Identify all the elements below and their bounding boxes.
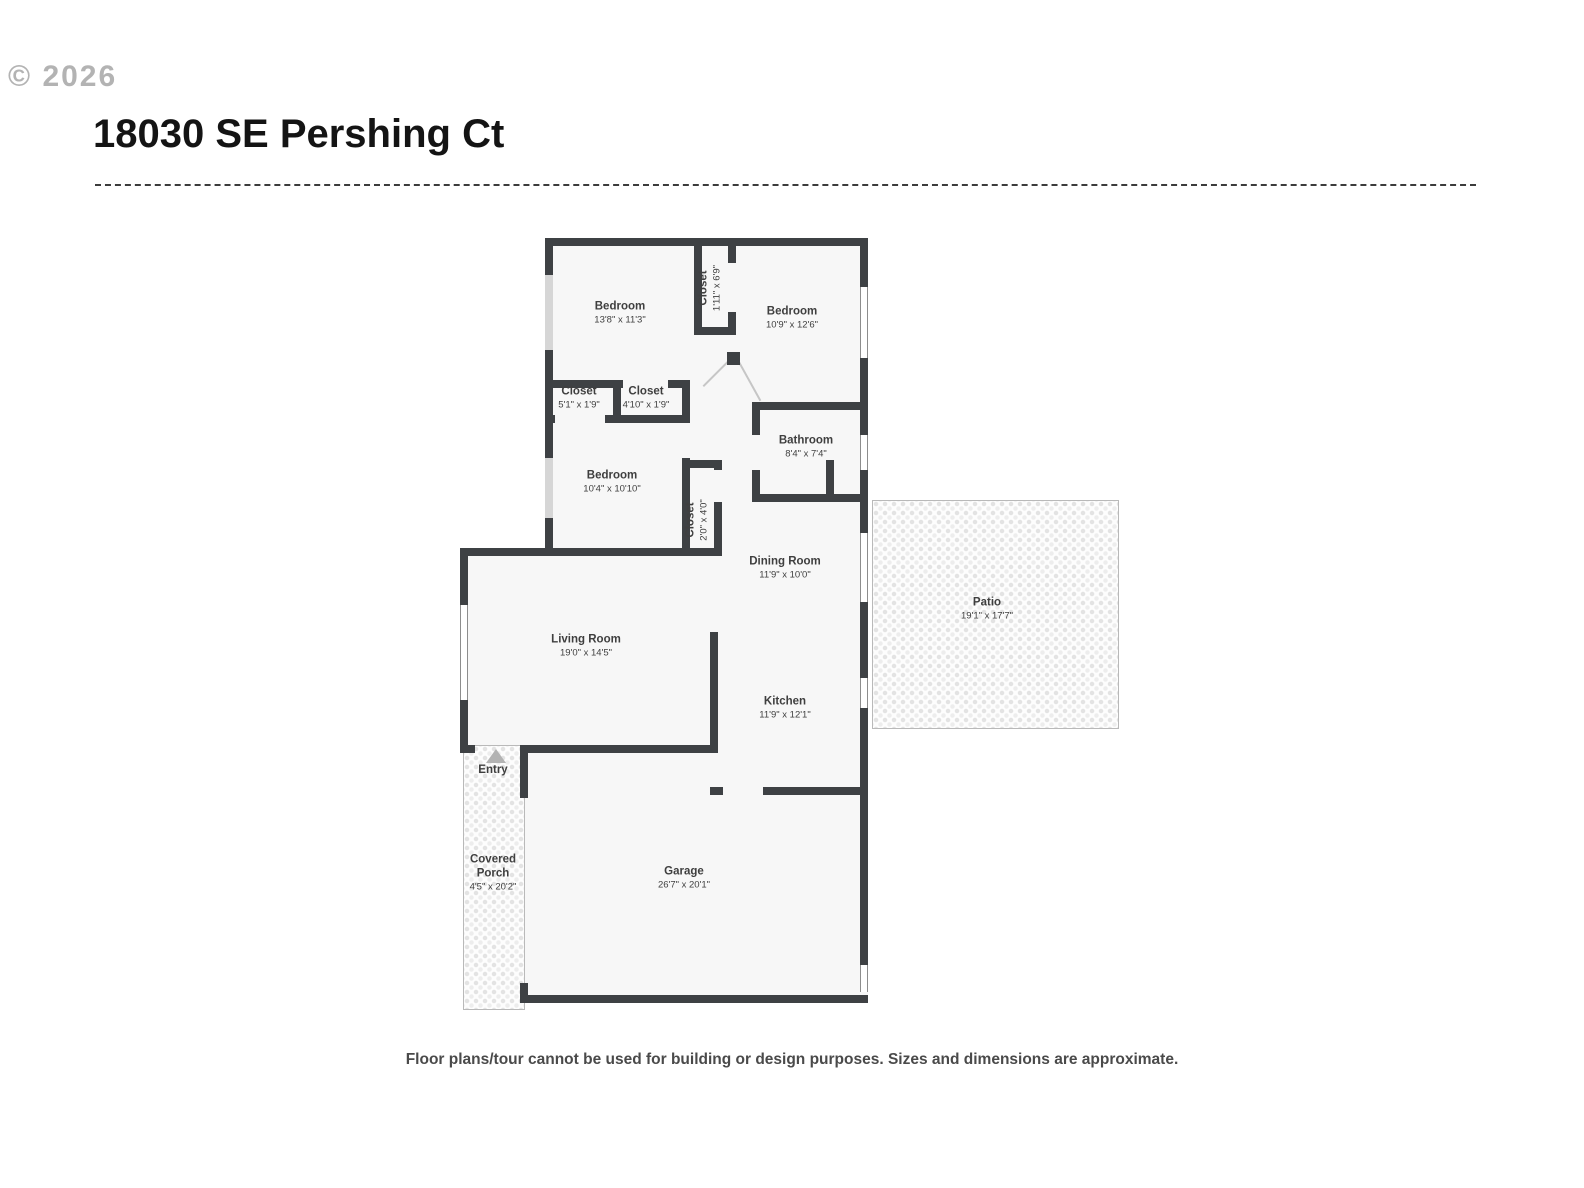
room-label-living: Living Room 19'0" x 14'5" [551, 633, 621, 658]
room-name: Garage [658, 865, 710, 879]
room-dims: 4'5" x 20'2" [470, 881, 517, 892]
room-dims: 1'11" x 6'9" [711, 265, 722, 311]
wall [728, 312, 736, 335]
window [860, 965, 868, 992]
sliding-door [860, 533, 868, 602]
copyright-watermark: © 2026 [8, 60, 117, 94]
room-label-bathroom: Bathroom 8'4" x 7'4" [779, 434, 833, 459]
wall [710, 632, 718, 753]
room-dims: 4'10" x 1'9" [623, 399, 670, 410]
room-label-dining: Dining Room 11'9" x 10'0" [749, 555, 821, 580]
room-name: Bedroom [766, 305, 818, 319]
wall [710, 787, 723, 795]
wall [728, 238, 736, 263]
wall [714, 502, 722, 556]
room-name: Kitchen [759, 695, 810, 709]
wall [826, 460, 834, 502]
room-name: Covered [470, 854, 517, 868]
room-name: Closet [558, 385, 600, 399]
wall [545, 350, 553, 458]
room-dims: 2'0" x 4'0" [698, 499, 709, 541]
room-label-closet-top: Closet 1'11" x 6'9" [697, 265, 722, 311]
wall [714, 460, 722, 470]
wall [545, 238, 553, 275]
room-label-covered-porch: Covered Porch 4'5" x 20'2" [470, 854, 517, 893]
room-dims: 19'0" x 14'5" [551, 647, 621, 658]
room-label-closet-right: Closet 4'10" x 1'9" [623, 385, 670, 410]
window [545, 275, 553, 350]
room-name: Entry [478, 764, 507, 778]
room-label-bedroom-2: Bedroom 10'9" x 12'6" [766, 305, 818, 330]
wall [545, 238, 868, 246]
room-dims: 8'4" x 7'4" [779, 448, 833, 459]
room-dims: 10'9" x 12'6" [766, 319, 818, 330]
wall [522, 995, 868, 1003]
disclaimer-text: Floor plans/tour cannot be used for buil… [0, 1051, 1584, 1069]
window [860, 435, 868, 470]
wall [520, 983, 528, 1003]
wall [860, 602, 868, 678]
wall [752, 470, 760, 502]
room-dims: 19'1" x 17'7" [961, 610, 1013, 621]
room-label-bedroom-1: Bedroom 13'8" x 11'3" [594, 300, 645, 325]
floor-plan-page: © 2026 18030 SE Pershing Ct [0, 0, 1584, 1188]
room-name: Closet [684, 499, 698, 541]
room-label-entry: Entry [478, 764, 507, 778]
room-label-kitchen: Kitchen 11'9" x 12'1" [759, 695, 810, 720]
room-name: Closet [697, 265, 711, 311]
room-name: Bathroom [779, 434, 833, 448]
entry-arrow-icon [486, 749, 506, 763]
room-dims: 10'4" x 10'10" [583, 483, 640, 494]
page-title: 18030 SE Pershing Ct [93, 112, 504, 157]
room-dims: 11'9" x 10'0" [749, 569, 821, 580]
room-dims: 5'1" x 1'9" [558, 399, 600, 410]
room-label-closet-hall: Closet 2'0" x 4'0" [684, 499, 709, 541]
wall [682, 388, 690, 420]
door-hinge-post [727, 352, 740, 365]
wall [460, 700, 468, 753]
wall [860, 358, 868, 435]
room-label-closet-left: Closet 5'1" x 1'9" [558, 385, 600, 410]
wall [860, 238, 868, 287]
window [860, 287, 868, 358]
room-name: Bedroom [594, 300, 645, 314]
window [460, 605, 468, 700]
room-name: Bedroom [583, 469, 640, 483]
wall [763, 787, 868, 795]
wall [668, 380, 690, 388]
room-name: Dining Room [749, 555, 821, 569]
room-label-garage: Garage 26'7" x 20'1" [658, 865, 710, 890]
wall [752, 402, 760, 435]
room-label-patio: Patio 19'1" x 17'7" [961, 596, 1013, 621]
wall [860, 798, 868, 965]
wall [545, 518, 553, 556]
wall [520, 745, 528, 798]
room-name: Closet [623, 385, 670, 399]
header-divider [95, 184, 1476, 186]
room-name: Living Room [551, 633, 621, 647]
wall [752, 402, 868, 410]
wall [520, 745, 718, 753]
window [545, 458, 553, 518]
room-label-bedroom-3: Bedroom 10'4" x 10'10" [583, 469, 640, 494]
room-dims: 11'9" x 12'1" [759, 709, 810, 720]
room-name: Patio [961, 596, 1013, 610]
wall [613, 380, 621, 423]
wall [460, 548, 468, 605]
window [860, 678, 868, 708]
wall [860, 470, 868, 533]
wall [860, 708, 868, 798]
wall [752, 494, 868, 502]
room-dims: 26'7" x 20'1" [658, 879, 710, 890]
room-dims: 13'8" x 11'3" [594, 314, 645, 325]
room-name: Porch [470, 867, 517, 881]
